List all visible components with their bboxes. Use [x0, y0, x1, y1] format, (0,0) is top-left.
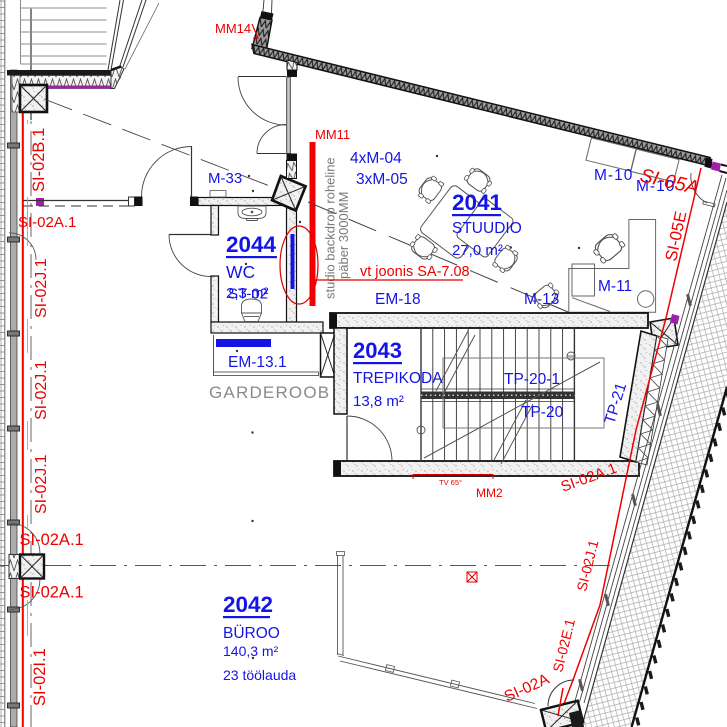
svg-text:M-11: M-11: [598, 278, 632, 295]
svg-text:STUUDIO: STUUDIO: [452, 220, 522, 237]
svg-text:SI-02I.1: SI-02I.1: [31, 648, 49, 706]
svg-text:MM2: MM2: [476, 486, 503, 500]
svg-text:TP-20-1: TP-20-1: [504, 371, 560, 388]
svg-text:BÜROO: BÜROO: [223, 624, 280, 642]
svg-text:päber 3000MM: päber 3000MM: [336, 192, 351, 279]
svg-text:4xM-04: 4xM-04: [350, 150, 402, 167]
svg-text:TREPIKODA: TREPIKODA: [353, 370, 443, 387]
svg-text:2041: 2041: [452, 190, 502, 215]
svg-text:WC: WC: [226, 262, 255, 282]
svg-text:SI-02J.1: SI-02J.1: [33, 258, 50, 318]
svg-text:M-33: M-33: [208, 170, 242, 187]
svg-text:23 töölauda: 23 töölauda: [223, 667, 296, 683]
svg-text:2042: 2042: [223, 592, 273, 617]
svg-text:2043: 2043: [353, 338, 402, 363]
svg-text:SI-02J.1: SI-02J.1: [33, 454, 50, 514]
svg-text:EM-13.1: EM-13.1: [228, 354, 287, 371]
svg-text:GARDEROOB: GARDEROOB: [209, 383, 330, 402]
svg-text:SI-02A.1: SI-02A.1: [18, 214, 76, 231]
svg-text:EM-18: EM-18: [375, 291, 421, 308]
svg-text:140,3 m²: 140,3 m²: [223, 643, 279, 659]
svg-text:TV 65°: TV 65°: [439, 478, 462, 487]
svg-text:M-13: M-13: [524, 291, 559, 308]
svg-text:SI-02A.1: SI-02A.1: [20, 584, 84, 602]
svg-text:3xM-05: 3xM-05: [356, 171, 408, 188]
svg-text:MM14: MM14: [215, 21, 251, 36]
svg-text:ST-02: ST-02: [228, 286, 268, 303]
svg-text:2044: 2044: [226, 232, 277, 257]
svg-text:SI-02B.1: SI-02B.1: [30, 128, 48, 192]
svg-text:SI-02J.1: SI-02J.1: [33, 360, 50, 420]
svg-text:M-10: M-10: [594, 167, 633, 184]
svg-text:13,8 m²: 13,8 m²: [353, 393, 404, 410]
svg-text:27,0 m²: 27,0 m²: [452, 242, 503, 259]
svg-text:SI-02A.1: SI-02A.1: [20, 531, 84, 549]
svg-text:MM11: MM11: [315, 127, 350, 142]
svg-text:TP-20: TP-20: [521, 404, 564, 421]
svg-text:vt joonis SA-7.08: vt joonis SA-7.08: [360, 264, 470, 280]
